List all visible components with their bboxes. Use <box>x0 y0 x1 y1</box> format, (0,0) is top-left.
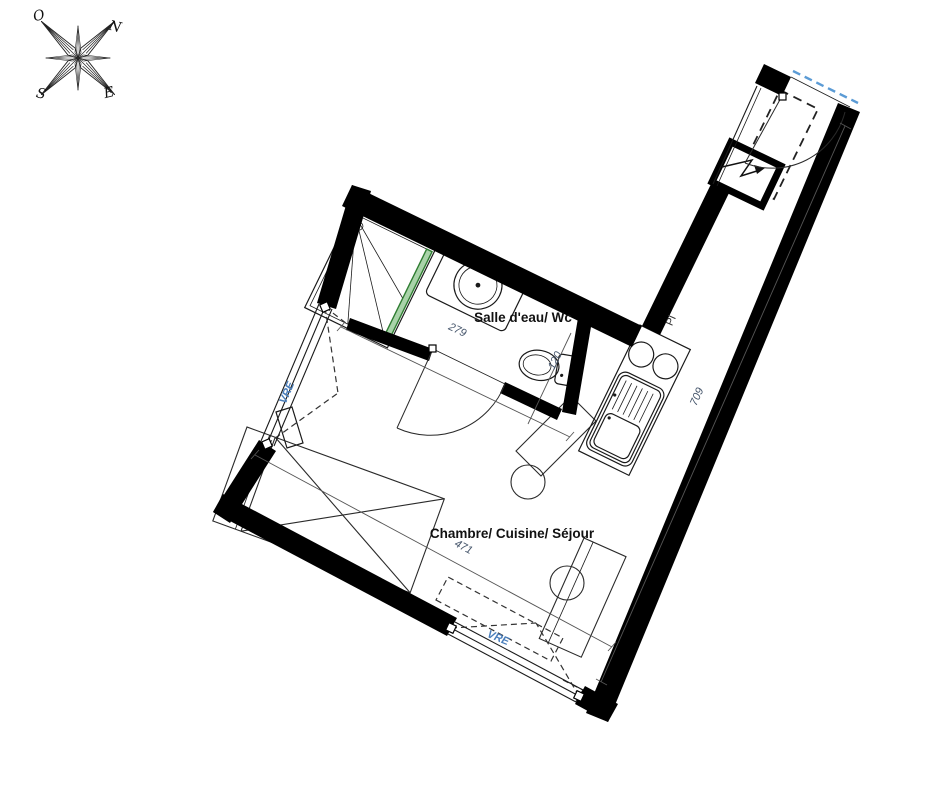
main-room-label: Chambre/ Cuisine/ Séjour <box>430 526 595 541</box>
floor-plan-canvas: O N S E <box>0 0 937 800</box>
compass-south-label: S <box>34 85 47 103</box>
compass-rose-icon: O N S E <box>32 7 124 103</box>
compass-north-label: N <box>106 18 123 37</box>
svg-text:279: 279 <box>446 320 469 339</box>
door-leaf <box>745 96 782 163</box>
boundary-line <box>793 71 858 103</box>
wall-entrance-top <box>755 64 791 96</box>
table <box>539 538 626 657</box>
wall-corridor-left <box>642 182 730 335</box>
bathroom-door <box>397 345 505 435</box>
wall-partition-right <box>500 382 562 420</box>
chair <box>550 566 584 600</box>
compass-east-label: E <box>101 84 116 102</box>
kitchen-sink <box>584 369 667 468</box>
wall-bathroom-right <box>562 318 592 415</box>
chair <box>511 465 545 499</box>
shower-screen <box>382 249 432 343</box>
closet-label: Pl <box>664 314 679 328</box>
floor-plan-page: O N S E <box>0 0 937 800</box>
door-leaf <box>397 349 433 428</box>
compass-west-label: O <box>32 7 48 25</box>
window-bottom: VRE <box>446 622 585 702</box>
bathroom-label: Salle d'eau/ Wc <box>474 310 572 325</box>
kitchenette <box>579 325 691 475</box>
svg-text:709: 709 <box>688 386 706 408</box>
vre-left-label: VRE <box>277 379 297 405</box>
window-left: VRE <box>261 302 332 449</box>
